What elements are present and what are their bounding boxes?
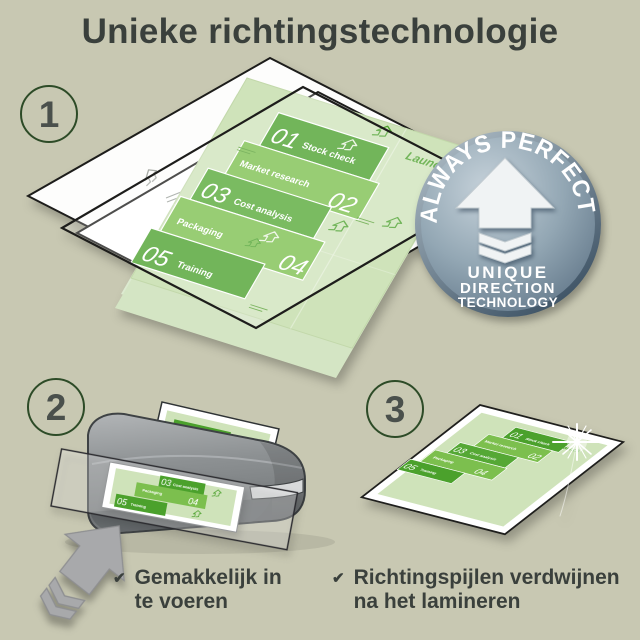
doc-item-number: 03: [160, 477, 172, 489]
step-3-circle: 3: [366, 380, 424, 438]
step-1-number: 1: [39, 96, 60, 133]
step-1-circle: 1: [20, 85, 78, 143]
bullet-line: na het lamineren: [354, 590, 620, 614]
badge-technology-label: TECHNOLOGY: [458, 295, 558, 310]
check-icon: ✔: [332, 570, 345, 614]
doc-item-number: 04: [187, 496, 199, 508]
bullet-line: Richtingspijlen verdwijnen: [354, 566, 620, 590]
step-2-circle: 2: [27, 378, 85, 436]
check-icon: ✔: [113, 570, 126, 614]
bullet-easy-feed: ✔ Gemakkelijk in te voeren: [113, 566, 282, 614]
step-3-number: 3: [385, 391, 406, 428]
bullet-line: Gemakkelijk in: [135, 566, 282, 590]
bullet-arrows-disappear: ✔ Richtingspijlen verdwijnen na het lami…: [332, 566, 620, 614]
bullet-line: te voeren: [135, 590, 282, 614]
infographic-canvas: Unieke richtingstechnologie: [0, 0, 640, 640]
step-2-number: 2: [46, 389, 67, 426]
illustration-layer: 01 Stock check Market research 02 03 Cos…: [0, 0, 640, 640]
